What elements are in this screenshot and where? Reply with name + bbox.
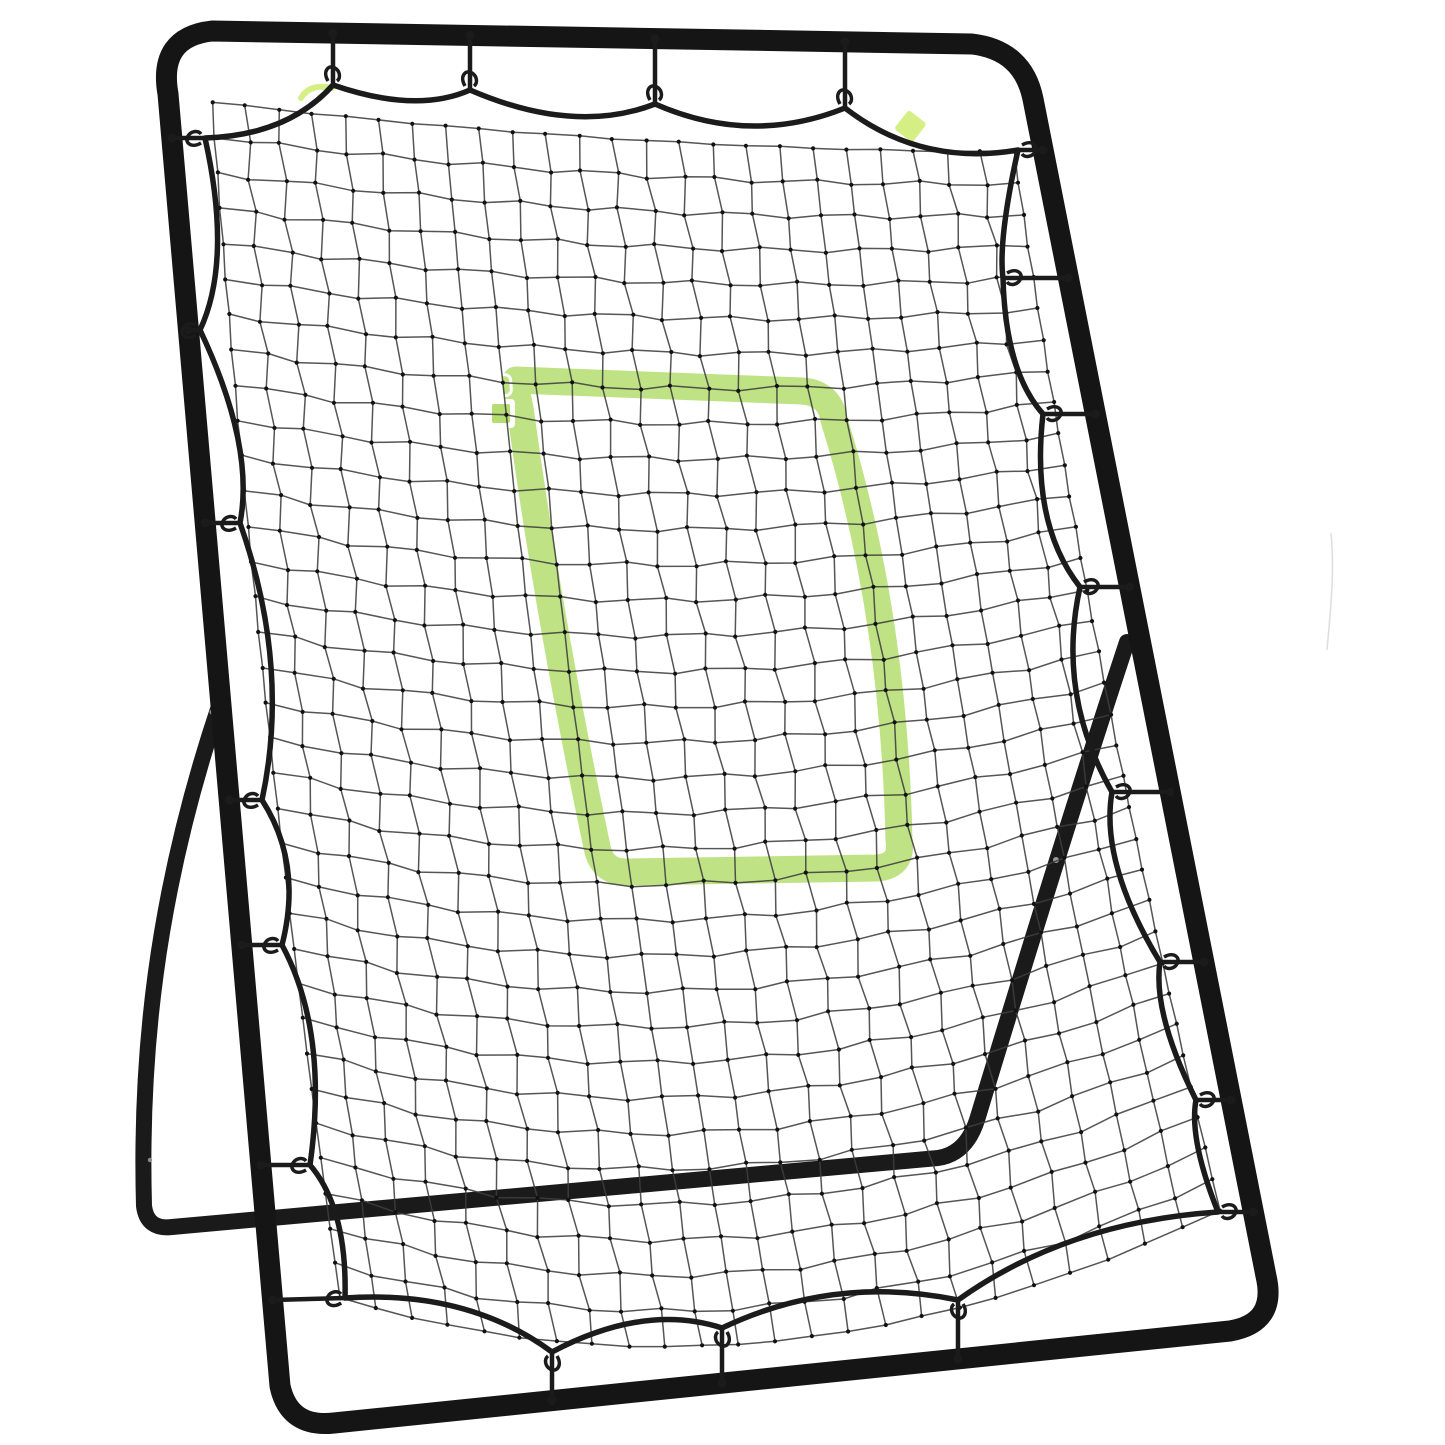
product-photo (0, 0, 1445, 1445)
photo-artifact-line (1327, 533, 1332, 650)
rear-support-legs (143, 642, 1127, 1227)
product-photo-svg (0, 0, 1445, 1445)
strike-zone-target (516, 380, 900, 872)
